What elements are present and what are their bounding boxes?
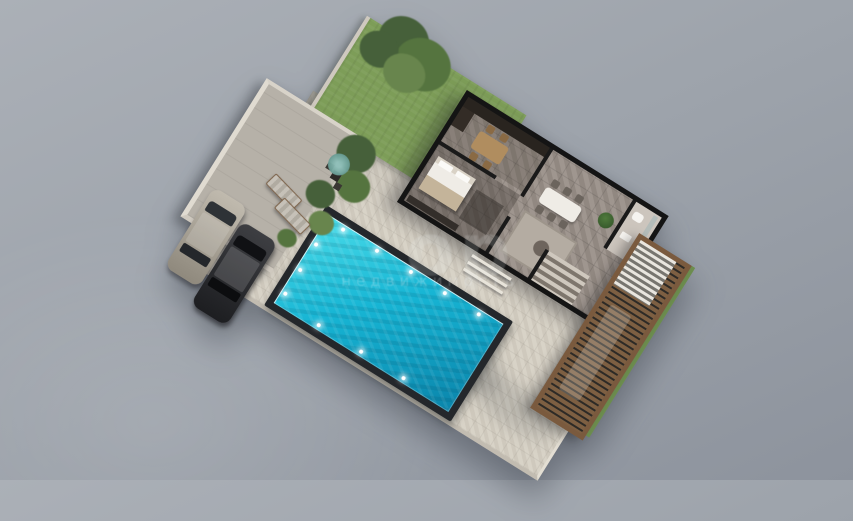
bedroom-rug: [459, 189, 504, 235]
pool-light: [313, 242, 319, 248]
chair: [546, 212, 557, 223]
pool-light: [283, 291, 289, 297]
dining-table: [538, 186, 583, 224]
floor-plan-scene: [164, 0, 696, 476]
pool-light: [476, 312, 482, 318]
pool-light: [297, 267, 303, 273]
pool-light: [358, 349, 364, 355]
sink: [619, 231, 632, 243]
chair: [558, 219, 569, 230]
pool-light: [340, 227, 346, 233]
pool-light: [316, 322, 322, 328]
toilet: [631, 211, 645, 224]
pool-light: [374, 248, 380, 254]
render-page: { "image": { "type": "3d-floor-plan-rend…: [0, 0, 853, 480]
pool-light: [408, 269, 414, 275]
chair: [534, 204, 545, 215]
pool-light: [442, 290, 448, 296]
pool-light: [401, 375, 407, 381]
